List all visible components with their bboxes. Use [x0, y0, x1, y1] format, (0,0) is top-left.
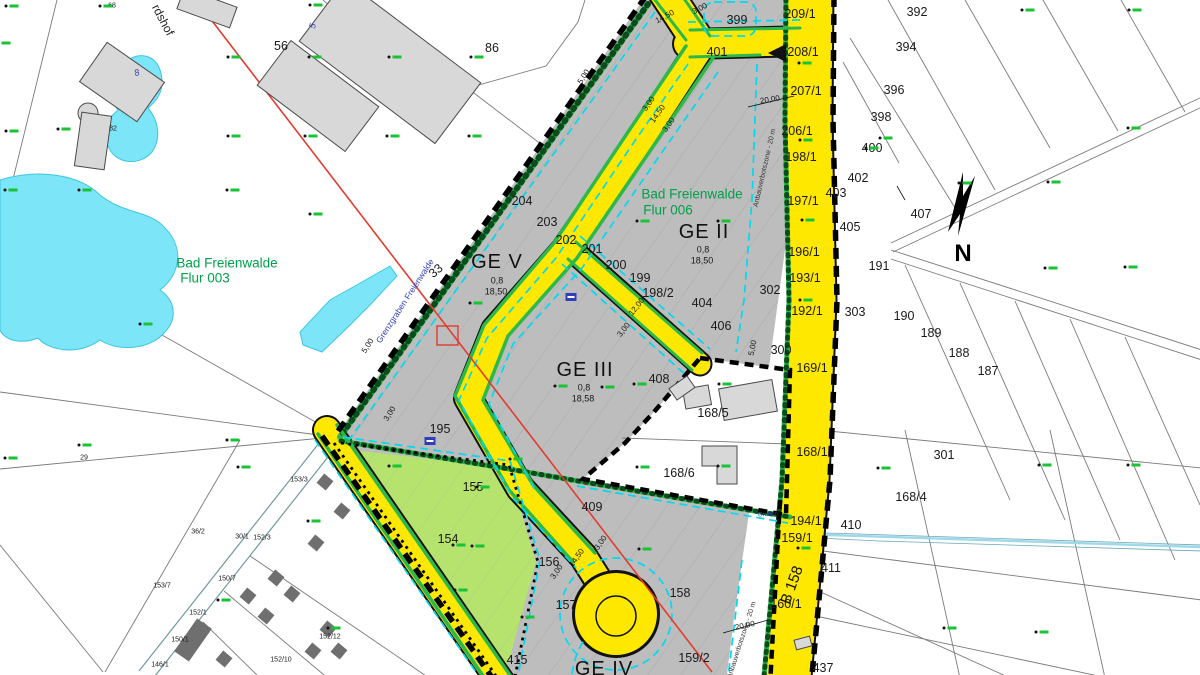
zone-value-label: 0,8: [578, 384, 591, 393]
parcel-label: 56: [274, 40, 288, 53]
parcel-label: 302: [760, 284, 781, 297]
district-label: Flur 006: [643, 203, 693, 217]
parcel-label: 158: [670, 587, 691, 600]
parcel-label: 187: [978, 365, 999, 378]
boundary-marker-icon: [474, 302, 483, 305]
parcel-label-small: 29: [80, 455, 88, 462]
parcel-label: 301: [934, 449, 955, 462]
boundary-marker-icon: [332, 627, 341, 630]
parcel-label: 207/1: [790, 85, 821, 98]
boundary-marker-icon: [231, 439, 240, 442]
parcel-label: 407: [911, 208, 932, 221]
boundary-marker-icon: [806, 219, 815, 222]
cul-de-sac: [572, 570, 660, 658]
boundary-marker-icon: [804, 139, 813, 142]
parcel-label: 399: [727, 14, 748, 27]
parcel-label: 405: [840, 221, 861, 234]
parcel-label: 203: [537, 216, 558, 229]
parcel-label: 197/1: [787, 195, 818, 208]
blue-marker-icon: [425, 437, 436, 445]
parcel-label: 193/1: [789, 272, 820, 285]
blue-marker-icon: [566, 293, 577, 301]
parcel-label: 392: [907, 6, 928, 19]
boundary-marker-icon: [559, 385, 568, 388]
boundary-marker-icon: [963, 182, 972, 185]
parcel-label-small: 30/1: [235, 534, 249, 541]
boundary-marker-icon: [641, 466, 650, 469]
boundary-marker-icon: [476, 545, 485, 548]
parcel-label: 169/1: [796, 362, 827, 375]
boundary-marker-icon: [393, 465, 402, 468]
north-letter: N: [954, 242, 971, 266]
boundary-marker-icon: [514, 458, 523, 461]
zone-label: GE II: [679, 222, 730, 242]
parcel-label: 208/1: [787, 46, 818, 59]
boundary-marker-icon: [457, 544, 466, 547]
boundary-marker-icon: [1043, 464, 1052, 467]
boundary-marker-icon: [232, 56, 241, 59]
parcel-label-small: 36/2: [191, 529, 205, 536]
existing-road-lines: [139, 433, 339, 675]
boundary-marker-icon: [475, 56, 484, 59]
parcel-label: 159/1: [781, 532, 812, 545]
boundary-marker-icon: [9, 457, 18, 460]
boundary-marker-icon: [802, 547, 811, 550]
parcel-label: 168/1: [796, 446, 827, 459]
boundary-marker-icon: [62, 128, 71, 131]
boundary-marker-icon: [884, 137, 893, 140]
boundary-marker-icon: [1040, 631, 1049, 634]
parcel-label: 204: [512, 195, 533, 208]
parcel-label: 401: [707, 46, 728, 59]
parcel-label: 200: [606, 259, 627, 272]
parcel-label: 415: [507, 654, 528, 667]
boundary-marker-icon: [1052, 181, 1061, 184]
parcel-label-small: 150/1: [171, 637, 189, 644]
boundary-marker-icon: [606, 386, 615, 389]
parcel-label: 410: [841, 519, 862, 532]
boundary-marker-icon: [312, 520, 321, 523]
parcel-label-small: 152/12: [319, 634, 340, 641]
parcel-label-small: 152/10: [270, 657, 291, 664]
boundary-marker-icon: [1132, 127, 1141, 130]
parcel-label: 157: [556, 599, 577, 612]
parcel-label: 190: [894, 310, 915, 323]
parcel-label: 198/2: [642, 287, 673, 300]
parcel-label: 189: [921, 327, 942, 340]
boundary-marker-icon: [231, 189, 240, 192]
zone-value-label: 0,8: [697, 246, 710, 255]
boundary-marker-icon: [526, 616, 535, 619]
boundary-marker-icon: [882, 467, 891, 470]
map-graphics: [0, 0, 1200, 675]
boundary-marker-icon: [1026, 9, 1035, 12]
zone-value-label: 0,8: [491, 277, 504, 286]
parcel-label-small: 150/7: [218, 576, 236, 583]
parcel-label: 398: [871, 111, 892, 124]
boundary-marker-icon: [393, 56, 402, 59]
parcel-label: 168/5: [697, 407, 728, 420]
boundary-marker-icon: [481, 486, 490, 489]
boundary-marker-icon: [948, 627, 957, 630]
parcel-label: 404: [692, 297, 713, 310]
boundary-marker-icon: [803, 62, 812, 65]
parcel-410-sliver: [795, 532, 1200, 551]
boundary-marker-icon: [1129, 266, 1138, 269]
parcel-label: 303: [845, 306, 866, 319]
parcel-label: 191: [869, 260, 890, 273]
parcel-label: 396: [884, 84, 905, 97]
parcel-label: 300: [771, 344, 792, 357]
zone-label: GE IV: [575, 659, 633, 675]
boundary-marker-icon: [242, 466, 251, 469]
district-label: Bad Freienwalde: [641, 187, 742, 201]
parcel-label: 409: [582, 501, 603, 514]
boundary-marker-icon: [870, 147, 879, 150]
ditch-label: Graben: [758, 511, 778, 518]
boundary-marker-icon: [641, 220, 650, 223]
boundary-marker-icon: [10, 130, 19, 133]
zone-value-label: 18,58: [572, 395, 595, 404]
parcel-label: 159/2: [678, 652, 709, 665]
parcel-label: 402: [848, 172, 869, 185]
district-label: Bad Freienwalde: [176, 256, 277, 270]
zoning-map-canvas: N 399401209/1208/1207/1206/1198/1197/119…: [0, 0, 1200, 675]
boundary-marker-icon: [1132, 464, 1141, 467]
boundary-marker-icon: [391, 135, 400, 138]
parcel-label: 154: [438, 533, 459, 546]
boundary-marker-icon: [473, 135, 482, 138]
parcel-label: 199: [630, 272, 651, 285]
district-label: Flur 003: [180, 271, 230, 285]
zone-label: GE V: [471, 252, 523, 272]
parcel-label-small: 82: [109, 126, 117, 133]
parcel-label: 206/1: [781, 125, 812, 138]
parcel-label-small: 153/7: [153, 583, 171, 590]
parcel-label: 195: [430, 423, 451, 436]
parcel-label: 198/1: [785, 151, 816, 164]
boundary-marker-icon: [722, 220, 731, 223]
parcel-label: 168/4: [895, 491, 926, 504]
boundary-marker-icon: [638, 383, 647, 386]
boundary-marker-icon: [222, 599, 231, 602]
parcel-label-small: 152/1: [189, 610, 207, 617]
boundary-marker-icon: [83, 189, 92, 192]
parcel-label: 403: [826, 187, 847, 200]
boundary-marker-icon: [232, 135, 241, 138]
boundary-marker-icon: [10, 5, 19, 8]
boundary-marker-icon: [314, 213, 323, 216]
parcel-label: 194/1: [790, 515, 821, 528]
boundary-marker-icon: [83, 444, 92, 447]
parcel-label-small: 153/3: [290, 477, 308, 484]
boundary-marker-icon: [722, 465, 731, 468]
parcel-label: 168/6: [663, 467, 694, 480]
parcel-label: 202: [556, 234, 577, 247]
parcel-label: 86: [485, 42, 499, 55]
parcel-label-small: 146/1: [151, 662, 169, 669]
parcel-label: 437: [813, 662, 834, 675]
boundary-marker-icon: [9, 189, 18, 192]
parcel-label: 408: [649, 373, 670, 386]
boundary-marker-icon: [309, 135, 318, 138]
boundary-marker-icon: [2, 42, 11, 45]
parcel-label: 188: [949, 347, 970, 360]
parcel-label: 201: [582, 243, 603, 256]
zone-value-label: 18,50: [485, 288, 508, 297]
parcel-label: 209/1: [784, 8, 815, 21]
parcel-label: 192/1: [791, 305, 822, 318]
parcel-label: 411: [821, 562, 841, 575]
parcel-label-small: 152/3: [253, 535, 271, 542]
boundary-marker-icon: [643, 548, 652, 551]
parcel-label: 406: [711, 320, 732, 333]
boundary-marker-icon: [104, 5, 113, 8]
parcel-label: 196/1: [788, 246, 819, 259]
boundary-marker-icon: [313, 56, 322, 59]
boundary-marker-icon: [1133, 9, 1142, 12]
zone-value-label: 18,50: [691, 257, 714, 266]
boundary-marker-icon: [804, 299, 813, 302]
boundary-marker-icon: [1049, 267, 1058, 270]
boundary-marker-icon: [459, 589, 468, 592]
boundary-marker-icon: [144, 323, 153, 326]
zone-label: GE III: [556, 360, 613, 380]
boundary-marker-icon: [314, 4, 323, 7]
boundary-marker-icon: [723, 383, 732, 386]
parcel-label: 394: [896, 41, 917, 54]
